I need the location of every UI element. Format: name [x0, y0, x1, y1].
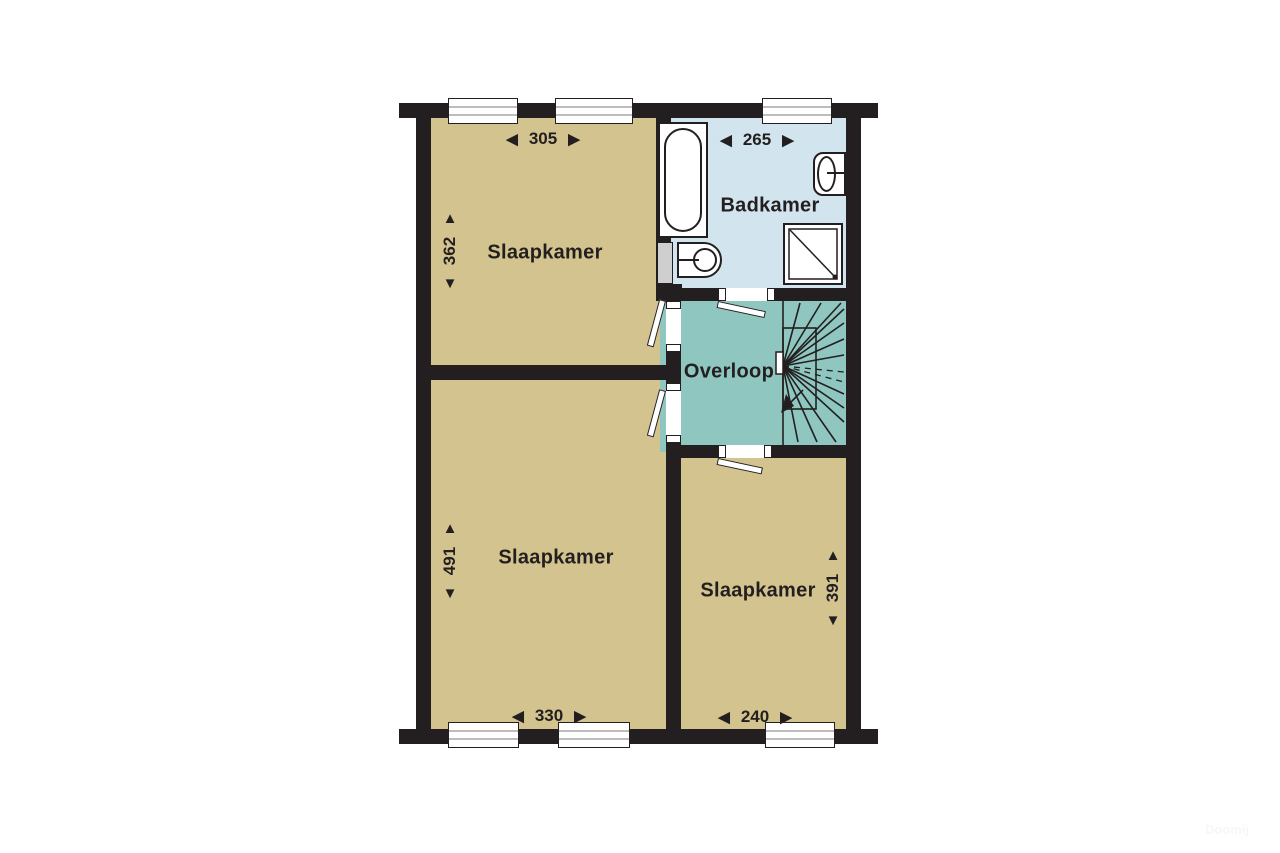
- dim-arrow-left-icon: ◀: [512, 709, 524, 724]
- shower-tray: [788, 228, 838, 280]
- window-pane-line: [766, 730, 834, 732]
- watermark: Doomij: [1205, 822, 1249, 837]
- window-pane-line: [763, 106, 831, 108]
- dim-depth-bedroom-bottom-left: ▲ 491 ▼: [440, 521, 460, 601]
- dim-arrow-right-icon: ▶: [782, 133, 794, 148]
- window-icon: [448, 98, 518, 124]
- dim-arrow-up-icon: ▲: [826, 548, 841, 563]
- dim-arrow-up-icon: ▲: [443, 521, 458, 536]
- wall-basin-bowl: [817, 156, 836, 192]
- window-pane-line: [449, 114, 517, 116]
- bathtub-basin: [664, 128, 702, 232]
- dim-arrow-down-icon: ▼: [826, 613, 841, 628]
- window-pane-line: [766, 738, 834, 740]
- dim-width-bathroom: ◀ 265 ▶: [720, 130, 793, 150]
- wall-left: [416, 103, 431, 744]
- dim-value: 491: [440, 547, 460, 575]
- dim-width-bedroom-bottom-right: ◀ 240 ▶: [718, 707, 791, 727]
- dim-arrow-right-icon: ▶: [574, 709, 586, 724]
- dim-arrow-left-icon: ◀: [506, 132, 518, 147]
- dim-value: 362: [440, 237, 460, 265]
- sink-bowl: [693, 248, 717, 272]
- window-pane-line: [449, 730, 518, 732]
- wall-landing-bedroom-right: [772, 445, 846, 458]
- dim-arrow-down-icon: ▼: [443, 586, 458, 601]
- dim-value: 305: [529, 129, 557, 149]
- dim-depth-bedroom-top-left: ▲ 362 ▼: [440, 211, 460, 291]
- room-label-bedroom-bottom-right: Slaapkamer: [700, 580, 815, 603]
- window-pane-line: [556, 106, 632, 108]
- room-label-bedroom-top-left: Slaapkamer: [487, 242, 602, 265]
- door-jamb: [718, 445, 726, 458]
- window-pane-line: [449, 738, 518, 740]
- floor-plan-canvas: Slaapkamer Badkamer Overloop Slaapkamer …: [0, 0, 1280, 853]
- window-pane-line: [449, 106, 517, 108]
- window-icon: [448, 722, 519, 748]
- dim-depth-bedroom-bottom-right: ▲ 391 ▼: [823, 548, 843, 628]
- dim-width-bedroom-bottom-left: ◀ 330 ▶: [512, 706, 585, 726]
- window-pane-line: [556, 114, 632, 116]
- room-label-bedroom-bottom-left: Slaapkamer: [498, 547, 613, 570]
- wall-between-left-bedrooms: [424, 365, 666, 380]
- dim-arrow-left-icon: ◀: [718, 710, 730, 725]
- dim-value: 391: [823, 574, 843, 602]
- dim-width-bedroom-top-left: ◀ 305 ▶: [506, 129, 579, 149]
- dim-arrow-right-icon: ▶: [568, 132, 580, 147]
- pedestal-sink-icon: [677, 242, 722, 278]
- dim-arrow-right-icon: ▶: [780, 710, 792, 725]
- dim-arrow-down-icon: ▼: [443, 276, 458, 291]
- door-jamb: [764, 445, 772, 458]
- dim-value: 330: [535, 706, 563, 726]
- room-label-landing: Overloop: [684, 361, 774, 384]
- wall-landing-bedroom-left: [666, 445, 718, 458]
- window-pane-line: [559, 738, 629, 740]
- shower-icon: [783, 223, 843, 285]
- dim-value: 240: [741, 707, 769, 727]
- wall-right: [846, 103, 861, 744]
- wall-basin-tap-line: [827, 172, 846, 174]
- bathtub-icon: [658, 122, 708, 238]
- window-pane-line: [763, 114, 831, 116]
- dim-value: 265: [743, 130, 771, 150]
- room-label-bathroom: Badkamer: [720, 195, 819, 218]
- dim-arrow-left-icon: ◀: [720, 133, 732, 148]
- wall-divider-lower: [666, 443, 681, 729]
- dim-arrow-up-icon: ▲: [443, 211, 458, 226]
- window-pane-line: [559, 730, 629, 732]
- duct-shaft: [657, 242, 673, 284]
- window-icon: [555, 98, 633, 124]
- window-icon: [762, 98, 832, 124]
